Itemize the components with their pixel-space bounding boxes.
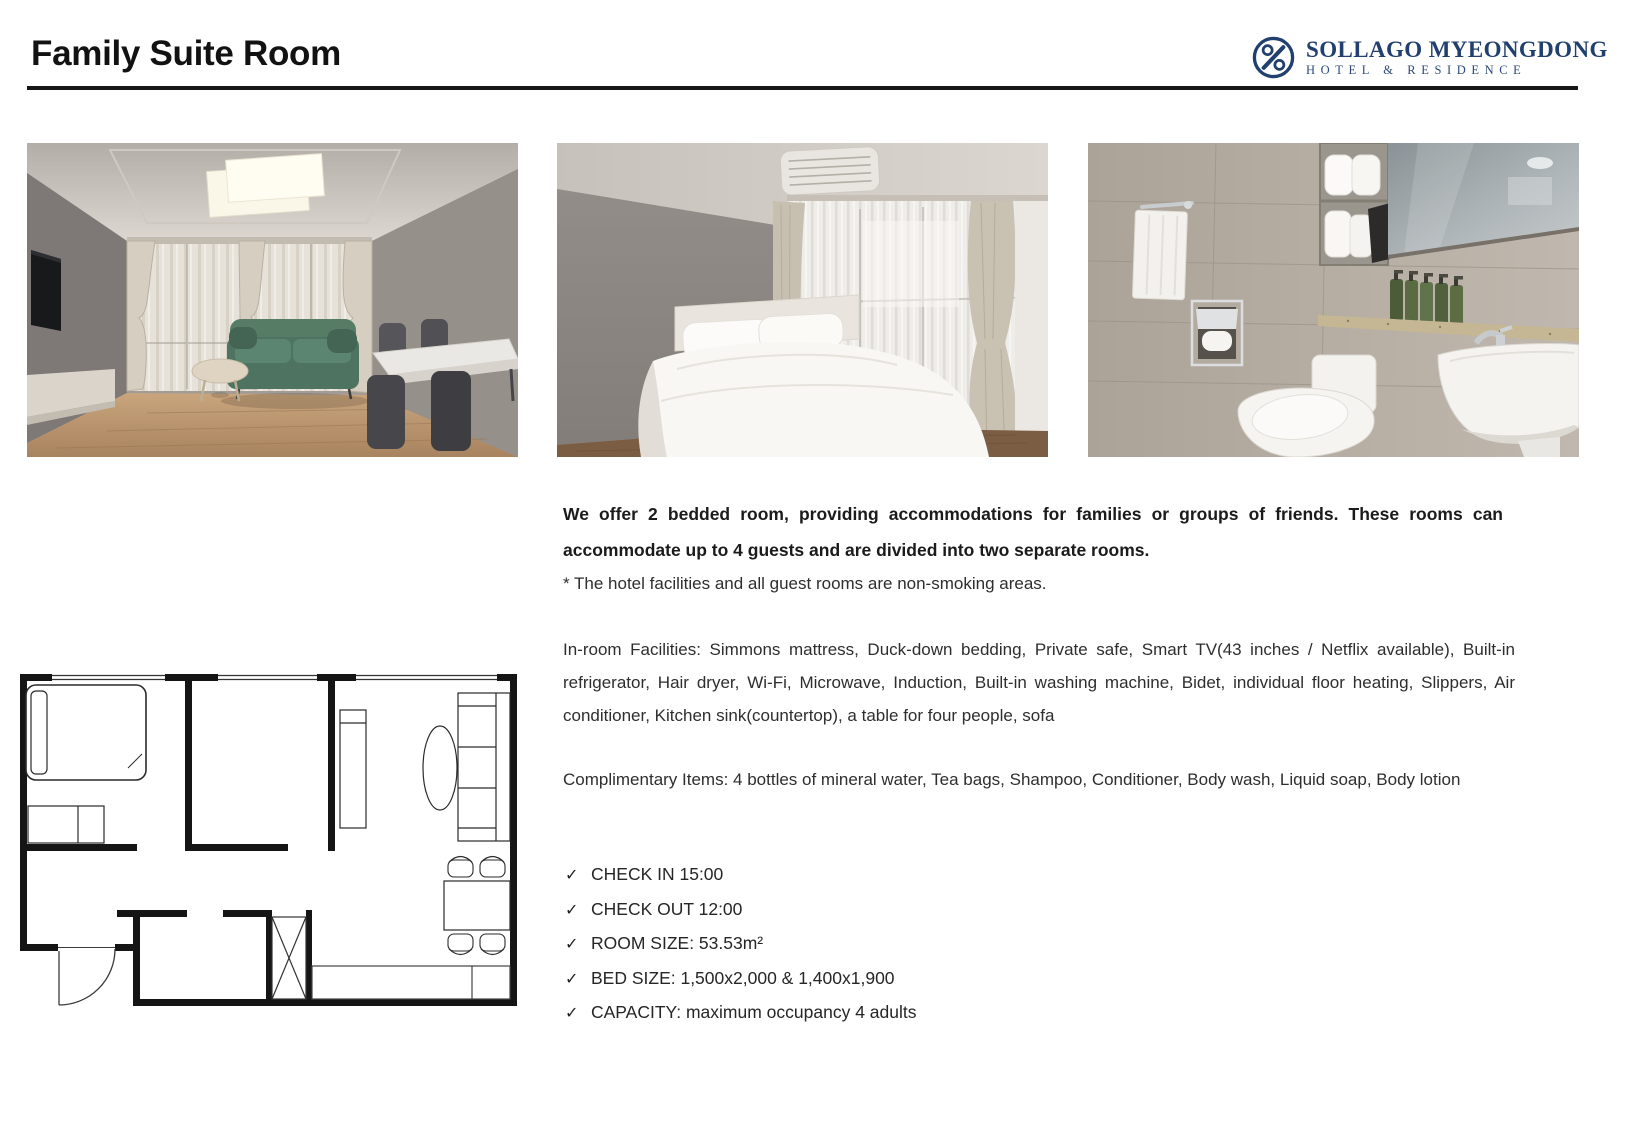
checklist-item-bed-size: ✓ BED SIZE: 1,500x2,000 & 1,400x1,900 [565,967,917,991]
hotel-logo: SOLLAGO MYEONGDONG HOTEL & RESIDENCE [1250,34,1608,81]
checkmark-icon: ✓ [565,934,591,956]
room-spec-checklist: ✓ CHECK IN 15:00 ✓ CHECK OUT 12:00 ✓ ROO… [565,863,917,1036]
kitchen-counter [312,966,510,999]
checklist-item-check-in: ✓ CHECK IN 15:00 [565,863,917,887]
hotel-name: SOLLAGO MYEONGDONG [1306,37,1608,62]
non-smoking-note: * The hotel facilities and all guest roo… [563,572,1515,596]
title-divider [27,86,1578,90]
checklist-item-room-size: ✓ ROOM SIZE: 53.53m² [565,932,917,956]
floor-plan [20,648,525,1016]
complimentary-items-text: Complimentary Items: 4 bottles of minera… [563,763,1515,796]
checklist-item-check-out: ✓ CHECK OUT 12:00 [565,898,917,922]
shaft-box [272,917,306,999]
bathroom-illustration [1088,143,1579,457]
checkmark-icon: ✓ [565,865,591,887]
hand-towel [1132,210,1187,300]
nightstand-symbol [28,806,104,843]
checklist-label: CAPACITY: maximum occupancy 4 adults [591,1001,917,1023]
bedroom-photo [557,143,1048,457]
checklist-item-capacity: ✓ CAPACITY: maximum occupancy 4 adults [565,1001,917,1025]
cabinet-symbol [340,710,366,828]
sofa-symbol [458,693,510,841]
brochure-page: Family Suite Room SOLLAGO MYEONGDONG HOT… [0,0,1625,1125]
tv [31,250,61,331]
living-room-illustration [27,143,518,457]
hotel-logo-icon [1250,34,1297,81]
living-room-photo [27,143,518,457]
shelf-cabinet [1320,143,1390,265]
page-title: Family Suite Room [31,34,341,74]
checkmark-icon: ✓ [565,969,591,991]
hotel-subtitle: HOTEL & RESIDENCE [1306,63,1608,78]
toilet-paper-holder [1192,301,1242,365]
checklist-label: CHECK OUT 12:00 [591,898,742,920]
hotel-logo-text: SOLLAGO MYEONGDONG HOTEL & RESIDENCE [1306,37,1608,78]
ac-vent [780,146,880,195]
checklist-label: CHECK IN 15:00 [591,863,723,885]
bathroom-photo [1088,143,1579,457]
checklist-label: ROOM SIZE: 53.53m² [591,932,763,954]
in-room-facilities-text: In-room Facilities: Simmons mattress, Du… [563,633,1515,732]
room-intro-text: We offer 2 bedded room, providing accomm… [563,496,1503,568]
entry-door [58,948,115,1006]
bed-symbol [26,685,146,780]
dining-table-symbol [444,857,510,955]
checkmark-icon: ✓ [565,900,591,922]
bedroom-illustration [557,143,1048,457]
table-symbol [423,726,457,810]
checklist-label: BED SIZE: 1,500x2,000 & 1,400x1,900 [591,967,895,989]
checkmark-icon: ✓ [565,1003,591,1025]
